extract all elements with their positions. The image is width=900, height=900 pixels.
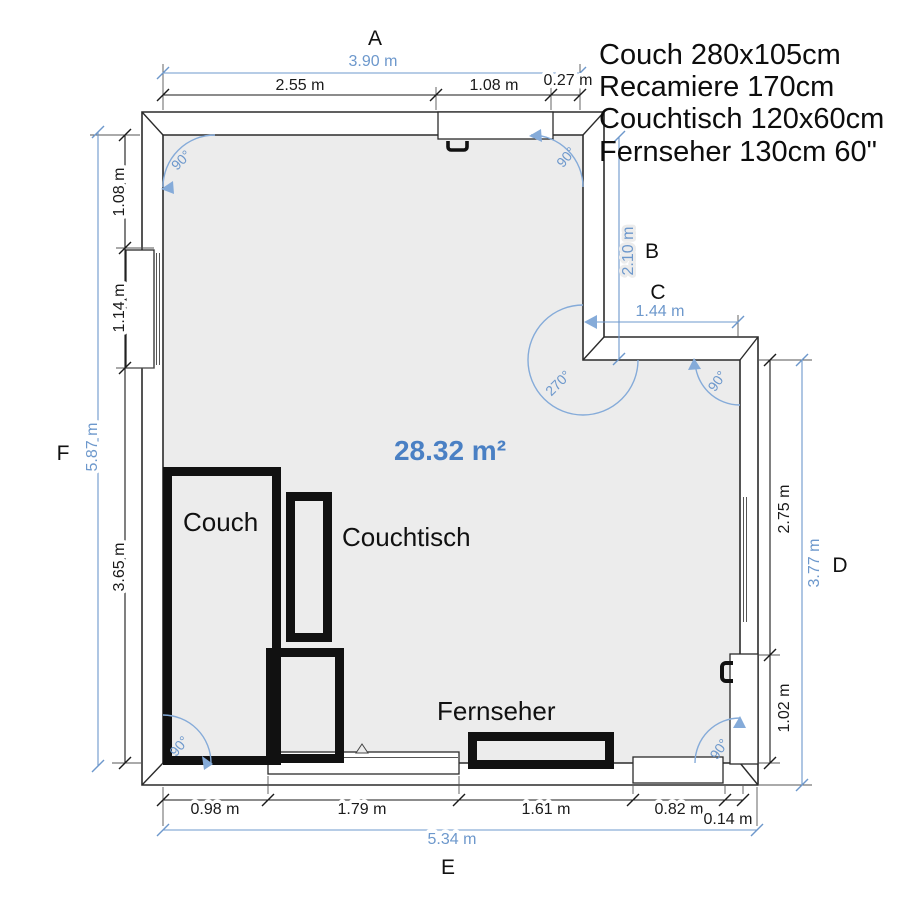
dim-left-seg3: 3.65 m (111, 543, 128, 592)
dim-bottom-seg2: 1.79 m (338, 801, 387, 818)
side-label-d: D (832, 554, 847, 577)
door-right (730, 654, 758, 764)
floor-plan-canvas: 3.90 m 2.55 m 1.08 m 0.27 m 5.87 m 1.08 … (0, 0, 900, 900)
fernseher-label: Fernseher (437, 696, 556, 726)
couchtisch-label: Couchtisch (342, 522, 471, 552)
dim-right-overall: 3.77 m (806, 539, 823, 588)
legend-line-couch: Couch 280x105cm (599, 39, 841, 71)
dim-left-seg2: 1.14 m (111, 284, 128, 333)
dim-left-seg1: 1.08 m (111, 168, 128, 217)
side-label-e: E (441, 856, 455, 879)
dim-bottom-seg1: 0.98 m (191, 801, 240, 818)
legend-line-fernseher: Fernseher 130cm 60" (599, 136, 877, 168)
window-bottom-right-sill (633, 757, 723, 783)
dim-left-overall: 5.87 m (84, 423, 101, 472)
dim-bottom-seg5: 0.14 m (704, 811, 753, 828)
legend-line-recamiere: Recamiere 170cm (599, 71, 834, 103)
room-area-label: 28.32 m² (394, 435, 506, 466)
dim-right-seg2: 1.02 m (776, 684, 793, 733)
side-label-a: A (368, 27, 382, 50)
dim-top-seg2: 1.08 m (470, 77, 519, 94)
legend-block: Couch 280x105cm Recamiere 170cm Couchtis… (599, 39, 884, 168)
dim-right-seg1: 2.75 m (776, 485, 793, 534)
dim-top-overall: 3.90 m (349, 53, 398, 70)
side-label-f: F (57, 442, 70, 465)
side-label-b: B (645, 240, 659, 263)
legend-line-couchtisch: Couchtisch 120x60cm (599, 103, 884, 135)
dim-notch-horizontal: 1.44 m (636, 303, 685, 320)
dim-bottom-seg4: 0.82 m (655, 801, 704, 818)
side-label-c: C (650, 281, 665, 304)
dim-bottom-seg3: 1.61 m (522, 801, 571, 818)
floor-plan-drawing: 3.90 m 2.55 m 1.08 m 0.27 m 5.87 m 1.08 … (0, 0, 900, 900)
window-left (126, 250, 154, 368)
dim-top-seg3: 0.27 m (544, 72, 593, 89)
dim-bottom-overall: 5.34 m (428, 831, 477, 848)
dim-top-seg1: 2.55 m (276, 77, 325, 94)
couch-label: Couch (183, 507, 258, 537)
dim-notch-vertical: 2.10 m (620, 227, 637, 276)
